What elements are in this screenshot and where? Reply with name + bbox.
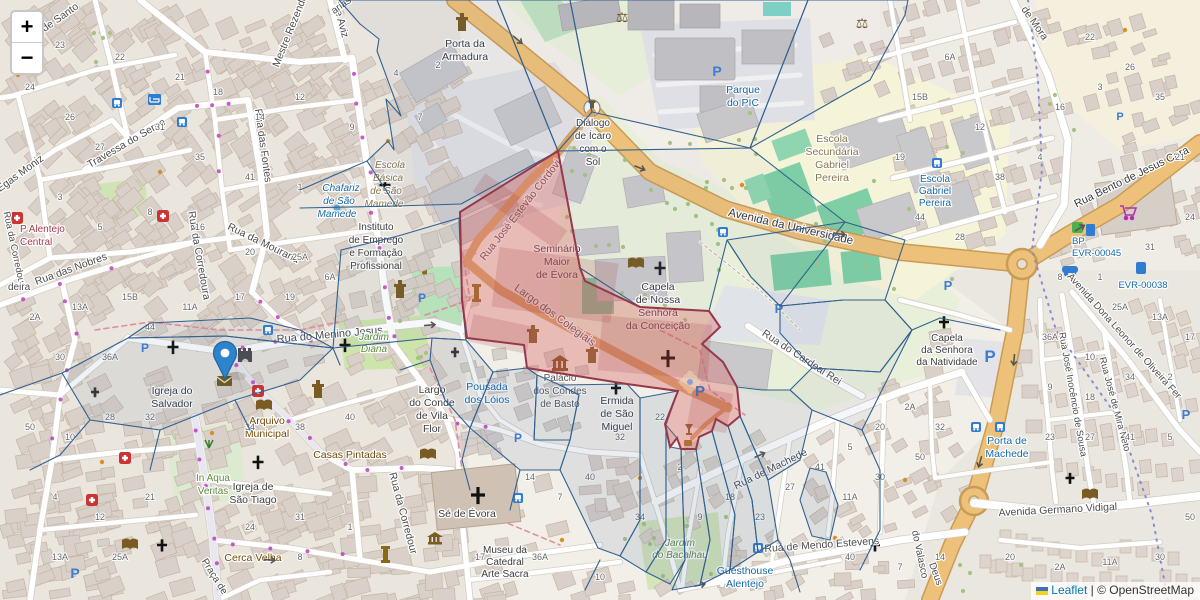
- svg-text:24: 24: [245, 522, 255, 532]
- svg-text:17: 17: [1185, 332, 1195, 342]
- svg-text:11A: 11A: [842, 492, 857, 502]
- svg-text:Igreja de: Igreja de: [233, 481, 274, 493]
- svg-text:Arte Sacra: Arte Sacra: [481, 569, 529, 580]
- svg-text:13A: 13A: [52, 552, 68, 562]
- svg-text:3: 3: [57, 192, 62, 202]
- svg-text:Casas Pintadas: Casas Pintadas: [313, 449, 387, 461]
- svg-text:P: P: [984, 347, 995, 366]
- svg-text:P Alentejo: P Alentejo: [20, 224, 65, 235]
- svg-text:30: 30: [1155, 552, 1165, 562]
- svg-text:de Ícaro: de Ícaro: [575, 129, 612, 142]
- svg-text:2A: 2A: [1054, 562, 1065, 572]
- svg-text:35: 35: [195, 152, 205, 162]
- svg-text:23: 23: [55, 40, 65, 50]
- svg-text:5: 5: [97, 222, 102, 232]
- svg-text:28: 28: [955, 232, 965, 242]
- svg-text:7: 7: [557, 492, 562, 502]
- svg-text:14: 14: [935, 552, 945, 562]
- svg-text:6A: 6A: [324, 272, 335, 282]
- svg-text:5: 5: [847, 442, 852, 452]
- svg-text:da Natividade: da Natividade: [916, 357, 978, 368]
- svg-text:8: 8: [1057, 272, 1062, 282]
- svg-text:41: 41: [1125, 432, 1135, 442]
- svg-text:Capela: Capela: [931, 333, 963, 344]
- svg-text:20: 20: [875, 422, 885, 432]
- svg-text:Pereira: Pereira: [815, 172, 849, 184]
- svg-text:22: 22: [115, 52, 125, 62]
- svg-text:27: 27: [1085, 432, 1095, 442]
- svg-text:10: 10: [65, 432, 75, 442]
- svg-text:Diana: Diana: [361, 344, 388, 355]
- svg-text:18: 18: [1085, 392, 1095, 402]
- svg-text:12: 12: [975, 122, 985, 132]
- svg-text:50: 50: [915, 452, 925, 462]
- svg-text:9: 9: [349, 122, 354, 132]
- svg-text:P: P: [1182, 407, 1191, 422]
- svg-text:Chafariz: Chafariz: [322, 183, 359, 194]
- svg-text:P: P: [944, 278, 953, 293]
- svg-text:32: 32: [935, 422, 945, 432]
- svg-text:26: 26: [65, 112, 75, 122]
- svg-text:16: 16: [1055, 102, 1065, 112]
- svg-text:P: P: [1116, 111, 1123, 123]
- svg-text:8: 8: [147, 207, 152, 217]
- svg-text:40: 40: [345, 412, 355, 422]
- svg-text:Veritas: Veritas: [198, 486, 229, 497]
- svg-text:P: P: [70, 565, 79, 581]
- svg-text:24: 24: [1185, 212, 1195, 222]
- svg-text:34: 34: [1125, 372, 1135, 382]
- svg-text:31: 31: [155, 122, 165, 132]
- svg-text:44: 44: [915, 212, 925, 222]
- svg-text:Flor: Flor: [423, 423, 442, 435]
- svg-text:Secundária: Secundária: [805, 146, 858, 158]
- svg-text:8: 8: [297, 552, 302, 562]
- svg-text:31: 31: [1145, 242, 1155, 252]
- svg-text:19: 19: [285, 292, 295, 302]
- svg-text:In Aqua: In Aqua: [196, 473, 230, 484]
- svg-text:21: 21: [1175, 152, 1185, 162]
- svg-text:27: 27: [95, 142, 105, 152]
- svg-text:50: 50: [1185, 512, 1195, 522]
- svg-text:BP: BP: [1072, 236, 1085, 247]
- svg-text:de Vila: de Vila: [416, 410, 448, 422]
- svg-text:22: 22: [1085, 32, 1095, 42]
- svg-text:Escola: Escola: [816, 133, 848, 145]
- svg-text:40: 40: [845, 552, 855, 562]
- svg-text:3: 3: [1097, 82, 1102, 92]
- svg-text:Machede: Machede: [985, 448, 1028, 460]
- svg-text:50: 50: [25, 422, 35, 432]
- svg-text:27: 27: [785, 482, 795, 492]
- svg-text:da Senhora: da Senhora: [921, 345, 973, 356]
- svg-text:4: 4: [1037, 152, 1042, 162]
- svg-text:31: 31: [295, 512, 305, 522]
- svg-text:13A: 13A: [1152, 312, 1168, 322]
- svg-text:2A: 2A: [904, 402, 915, 412]
- svg-text:7: 7: [897, 562, 902, 572]
- svg-text:14: 14: [525, 472, 535, 482]
- svg-text:25A: 25A: [112, 552, 128, 562]
- svg-text:24: 24: [25, 82, 35, 92]
- svg-text:Sé de Évora: Sé de Évora: [438, 507, 496, 520]
- svg-text:Gabriel: Gabriel: [919, 186, 951, 197]
- svg-text:6A: 6A: [944, 52, 955, 62]
- svg-text:38: 38: [995, 172, 1005, 182]
- svg-text:EVR-00038: EVR-00038: [1118, 280, 1167, 291]
- svg-text:de São: de São: [323, 196, 355, 207]
- svg-text:41: 41: [245, 172, 255, 182]
- svg-text:36A: 36A: [532, 552, 548, 562]
- svg-text:deira: deira: [8, 282, 31, 293]
- svg-text:15B: 15B: [122, 292, 138, 302]
- svg-text:Mamede: Mamede: [318, 209, 357, 220]
- svg-text:23: 23: [1045, 432, 1055, 442]
- svg-text:21: 21: [175, 72, 185, 82]
- svg-text:9: 9: [1047, 382, 1052, 392]
- svg-text:13A: 13A: [72, 302, 88, 312]
- svg-text:São Tiago: São Tiago: [229, 494, 276, 506]
- svg-text:25A: 25A: [292, 252, 308, 262]
- svg-text:Instituto: Instituto: [358, 222, 393, 233]
- svg-text:2A: 2A: [29, 312, 40, 322]
- svg-text:5: 5: [1167, 432, 1172, 442]
- svg-text:Escola: Escola: [920, 174, 950, 185]
- svg-text:Museu da: Museu da: [483, 545, 527, 556]
- svg-text:16: 16: [195, 222, 205, 232]
- svg-text:12: 12: [95, 512, 105, 522]
- svg-text:20: 20: [1005, 552, 1015, 562]
- svg-text:30: 30: [55, 352, 65, 362]
- svg-text:10: 10: [1085, 352, 1095, 362]
- svg-text:Pereira: Pereira: [919, 198, 952, 209]
- svg-text:15B: 15B: [912, 92, 928, 102]
- svg-text:Catedral: Catedral: [486, 557, 524, 568]
- svg-text:36A: 36A: [1042, 332, 1058, 342]
- svg-text:25A: 25A: [1112, 302, 1128, 312]
- svg-text:4: 4: [52, 492, 57, 502]
- svg-text:EVR-00045: EVR-00045: [1072, 248, 1121, 259]
- svg-text:26: 26: [1125, 62, 1135, 72]
- svg-text:P: P: [695, 383, 705, 400]
- svg-text:21: 21: [145, 492, 155, 502]
- svg-text:18: 18: [213, 87, 223, 97]
- svg-text:17: 17: [475, 552, 485, 562]
- svg-text:10: 10: [595, 572, 605, 582]
- svg-text:38: 38: [295, 422, 305, 432]
- svg-text:20: 20: [245, 247, 255, 257]
- svg-text:Alentejo: Alentejo: [726, 578, 764, 590]
- svg-text:19: 19: [895, 152, 905, 162]
- svg-text:11A: 11A: [182, 302, 197, 312]
- svg-text:35: 35: [1155, 92, 1165, 102]
- svg-text:1: 1: [347, 522, 352, 532]
- svg-text:Porta de: Porta de: [987, 435, 1027, 447]
- svg-text:12: 12: [295, 92, 305, 102]
- svg-text:17: 17: [235, 292, 245, 302]
- svg-text:1: 1: [1097, 272, 1102, 282]
- svg-text:Central: Central: [20, 237, 52, 248]
- svg-text:11A: 11A: [1102, 557, 1117, 567]
- svg-text:Gabriel: Gabriel: [815, 159, 849, 171]
- svg-text:14: 14: [255, 112, 265, 122]
- svg-text:2: 2: [1167, 372, 1172, 382]
